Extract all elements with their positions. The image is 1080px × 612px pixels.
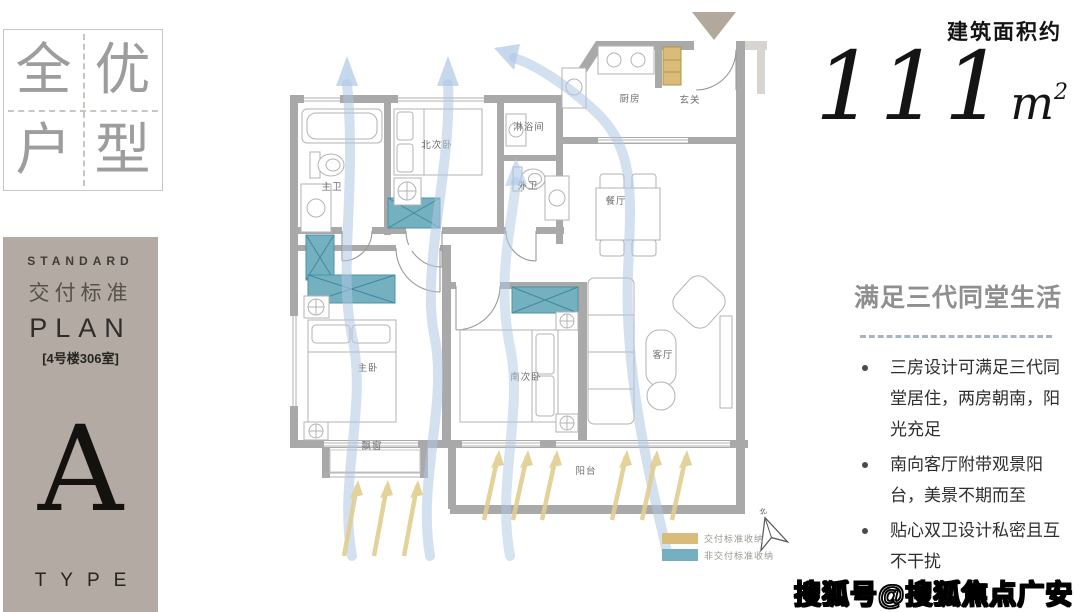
room-label-dining: 餐厅: [605, 195, 626, 207]
legend-label-delivered: 交付标准收纳: [704, 533, 764, 544]
storage-cabinet-tan: [663, 47, 681, 85]
legend: 交付标准收纳 非交付标准收纳: [662, 533, 774, 561]
room-label-balcony: 阳台: [575, 465, 596, 477]
svg-text:北: 北: [759, 507, 768, 517]
entry-marker-icon: [692, 12, 736, 40]
room-label-shower: 淋浴间: [513, 121, 545, 133]
sunlight-arrows: [344, 450, 692, 556]
legend-swatch-delivered: [662, 533, 698, 544]
bay-window-sill: [330, 450, 420, 472]
page: 全 优 户 型 STANDARD 交付标准 PLAN [4号楼306室] A T…: [0, 0, 1080, 612]
legend-label-non-delivered: 非交付标准收纳: [704, 550, 774, 561]
legend-swatch-non-delivered: [662, 549, 698, 561]
room-label-living: 客厅: [652, 349, 673, 361]
room-label-kitchen: 厨房: [619, 93, 640, 105]
room-label-foyer: 玄关: [679, 94, 700, 106]
room-label-master-bath: 主卫: [321, 181, 342, 193]
watermark: 搜狐号@搜狐焦点广安站: [794, 573, 1080, 612]
master-bath-fixtures: [301, 109, 382, 232]
floor-plan: 主卫 北次卧 淋浴间 外卫 厨房 玄关 餐厅 主卧 南次卧 客厅 飘窗 阳台: [0, 0, 1080, 612]
living-room-furniture: [588, 271, 732, 424]
room-label-bay-window: 飘窗: [361, 440, 382, 452]
neighbor-wall-stubs: [745, 41, 767, 94]
